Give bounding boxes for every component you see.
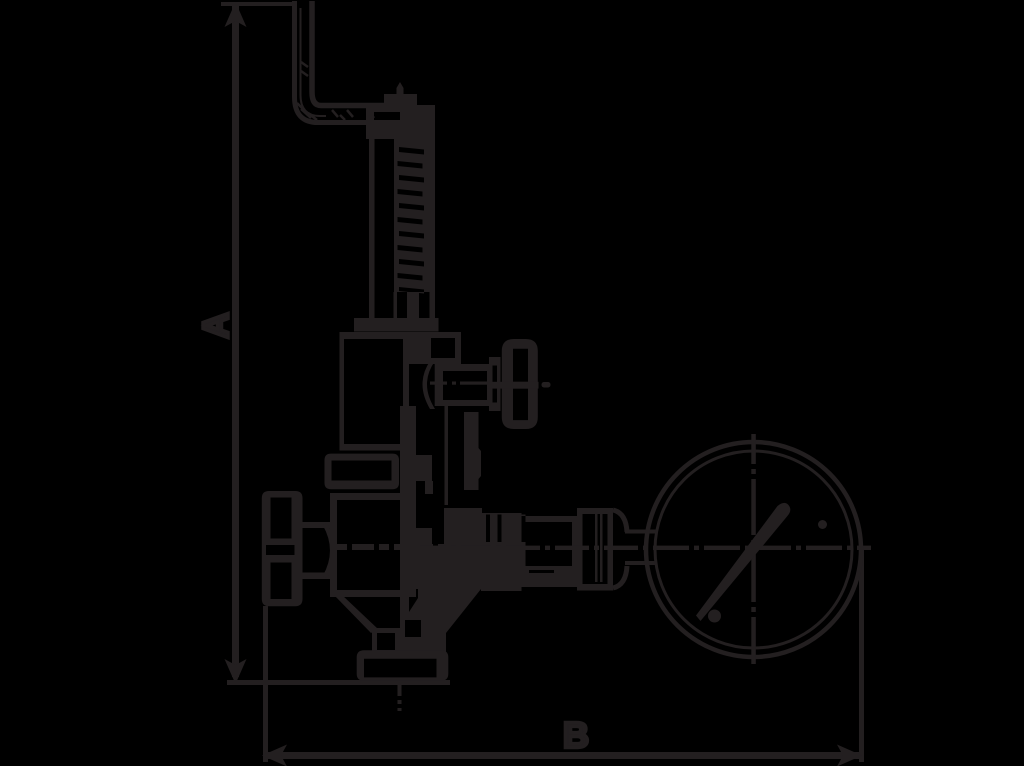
svg-text:A: A <box>195 313 236 339</box>
svg-text:B: B <box>563 715 589 756</box>
